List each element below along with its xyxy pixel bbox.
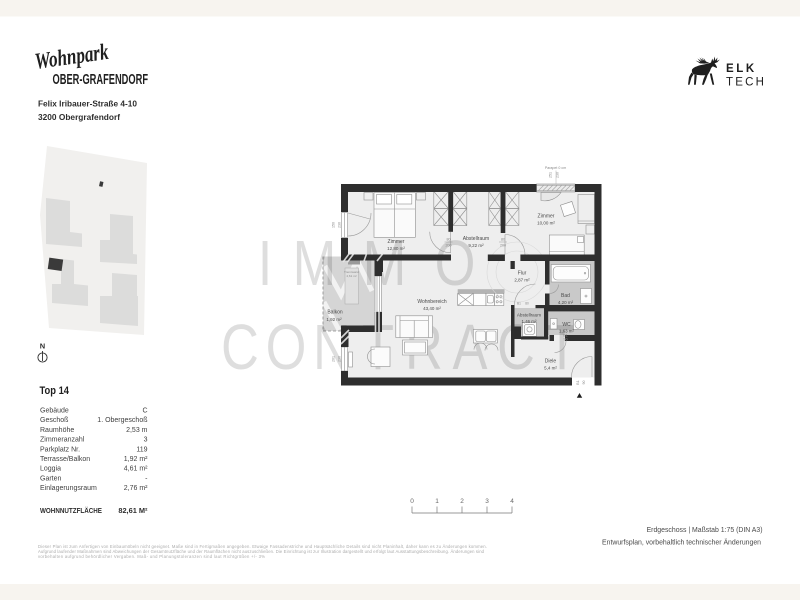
svg-text:3: 3 [144,437,148,444]
svg-text:Zimmer: Zimmer [388,239,405,245]
svg-text:2,87 m²: 2,87 m² [514,278,530,283]
svg-text:OBER-GRAFENDORF: OBER-GRAFENDORF [53,72,149,88]
svg-text:Bad: Bad [561,293,570,299]
svg-text:2: 2 [460,498,464,505]
svg-text:1,92 m²: 1,92 m² [326,317,342,322]
svg-text:Balkon: Balkon [327,310,343,316]
svg-text:9,22 m²: 9,22 m² [468,243,484,248]
svg-text:251: 251 [549,172,553,178]
svg-text:119: 119 [136,446,147,453]
svg-text:1: 1 [435,498,439,505]
svg-text:Flur: Flur [518,271,527,277]
svg-text:4,61 m²: 4,61 m² [346,274,356,278]
svg-text:Geschoß: Geschoß [40,417,68,424]
svg-text:4: 4 [510,498,514,505]
svg-text:43,40 m²: 43,40 m² [423,306,441,311]
svg-text:200: 200 [500,244,506,248]
svg-text:82,61 M²: 82,61 M² [118,506,148,515]
svg-text:201: 201 [332,356,336,362]
svg-text:B1: B1 [576,380,580,384]
svg-text:C: C [142,408,147,415]
svg-text:C: C [221,312,259,383]
svg-text:10,00 m²: 10,00 m² [537,221,555,226]
svg-text:2,53 m: 2,53 m [126,427,148,434]
svg-text:80: 80 [525,302,529,306]
svg-text:TECH: TECH [726,77,766,89]
svg-text:Diele: Diele [545,359,557,365]
svg-text:80: 80 [501,238,505,242]
svg-text:Parapet 0 cm: Parapet 0 cm [545,166,566,170]
svg-text:90: 90 [564,338,568,342]
svg-text:N: N [40,342,45,351]
svg-text:4,61 m²: 4,61 m² [124,466,148,473]
svg-text:12,80 m²: 12,80 m² [387,246,405,251]
svg-text:5,4 m²: 5,4 m² [544,366,557,371]
svg-text:Entwurfsplan, vorbehaltlich te: Entwurfsplan, vorbehaltlich technischer … [602,539,761,547]
svg-text:Einlagerungsraum: Einlagerungsraum [40,485,97,492]
svg-text:I: I [258,228,273,299]
svg-text:230: 230 [338,356,342,362]
svg-text:WC: WC [562,322,571,328]
svg-text:A: A [452,312,487,383]
svg-text:Gebäude: Gebäude [40,408,69,415]
svg-text:Parkplatz Nr.: Parkplatz Nr. [40,446,80,453]
svg-text:4,20 m²: 4,20 m² [558,300,574,305]
svg-text:Garten: Garten [40,475,62,482]
svg-text:Abstellraum: Abstellraum [463,236,489,242]
svg-text:1. Obergeschoß: 1. Obergeschoß [97,417,147,424]
svg-text:1,92 m²: 1,92 m² [124,456,148,463]
svg-text:Terrasse/Balkon: Terrasse/Balkon [40,456,90,463]
svg-text:Zimmer: Zimmer [538,214,555,220]
svg-text:150: 150 [332,222,336,228]
svg-text:90: 90 [582,381,586,385]
svg-text:80: 80 [447,238,451,242]
svg-text:230: 230 [338,222,342,228]
svg-text:Top 14: Top 14 [40,385,70,397]
svg-text:0: 0 [410,498,414,505]
svg-text:Loggia: Loggia [40,466,61,473]
svg-text:Wohnbereich: Wohnbereich [417,299,447,305]
svg-text:3: 3 [485,498,489,505]
svg-text:Erdgeschoss | Maßstab 1:75 (DI: Erdgeschoss | Maßstab 1:75 (DIN A3) [647,527,763,534]
svg-text:Abstellraum: Abstellraum [517,313,541,318]
svg-text:O: O [266,312,307,383]
svg-text:3200 Obergrafendorf: 3200 Obergrafendorf [38,112,120,122]
svg-text:1,46 m²: 1,46 m² [522,319,537,324]
svg-text:ELK: ELK [726,63,757,75]
svg-text:200: 200 [446,244,452,248]
svg-text:WOHNNUTZFLÄCHE: WOHNNUTZFLÄCHE [40,506,102,515]
svg-text:M: M [293,228,337,299]
svg-text:Zimmeranzahl: Zimmeranzahl [40,437,85,444]
svg-text:Felix Iribauer-Straße 4-10: Felix Iribauer-Straße 4-10 [38,99,137,109]
svg-text:vorbehalten aufgrund behördlic: vorbehalten aufgrund behördlicher Vergab… [38,554,265,559]
svg-text:2,76 m²: 2,76 m² [124,485,148,492]
svg-text:Raumhöhe: Raumhöhe [40,427,74,434]
svg-text:B1: B1 [517,302,521,306]
